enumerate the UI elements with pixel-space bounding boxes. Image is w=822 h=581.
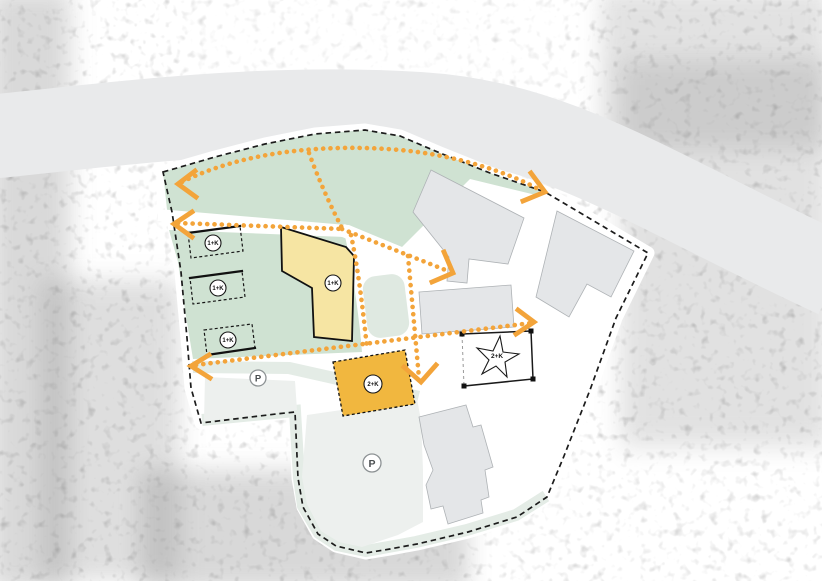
building-1-label: 1+K (207, 241, 219, 247)
parking-lot-south (302, 399, 423, 547)
parking-1-label: P (255, 373, 262, 384)
star-plot: 2+K (460, 329, 536, 389)
building-l-label: 1+K (327, 281, 339, 287)
building-orange-label: 2+K (367, 382, 379, 388)
parking-2-label: P (368, 458, 375, 470)
pond-shape (361, 273, 410, 340)
site-plan-diagram: 2+K 1+K 1+K 1+K 1+K 2+K (0, 0, 822, 581)
pond (361, 273, 410, 340)
star-plot-label: 2+K (491, 353, 503, 360)
building-2-label: 1+K (212, 286, 224, 292)
site-plan-canvas: 2+K 1+K 1+K 1+K 1+K 2+K (0, 0, 822, 581)
building-3-label: 1+K (222, 338, 234, 344)
